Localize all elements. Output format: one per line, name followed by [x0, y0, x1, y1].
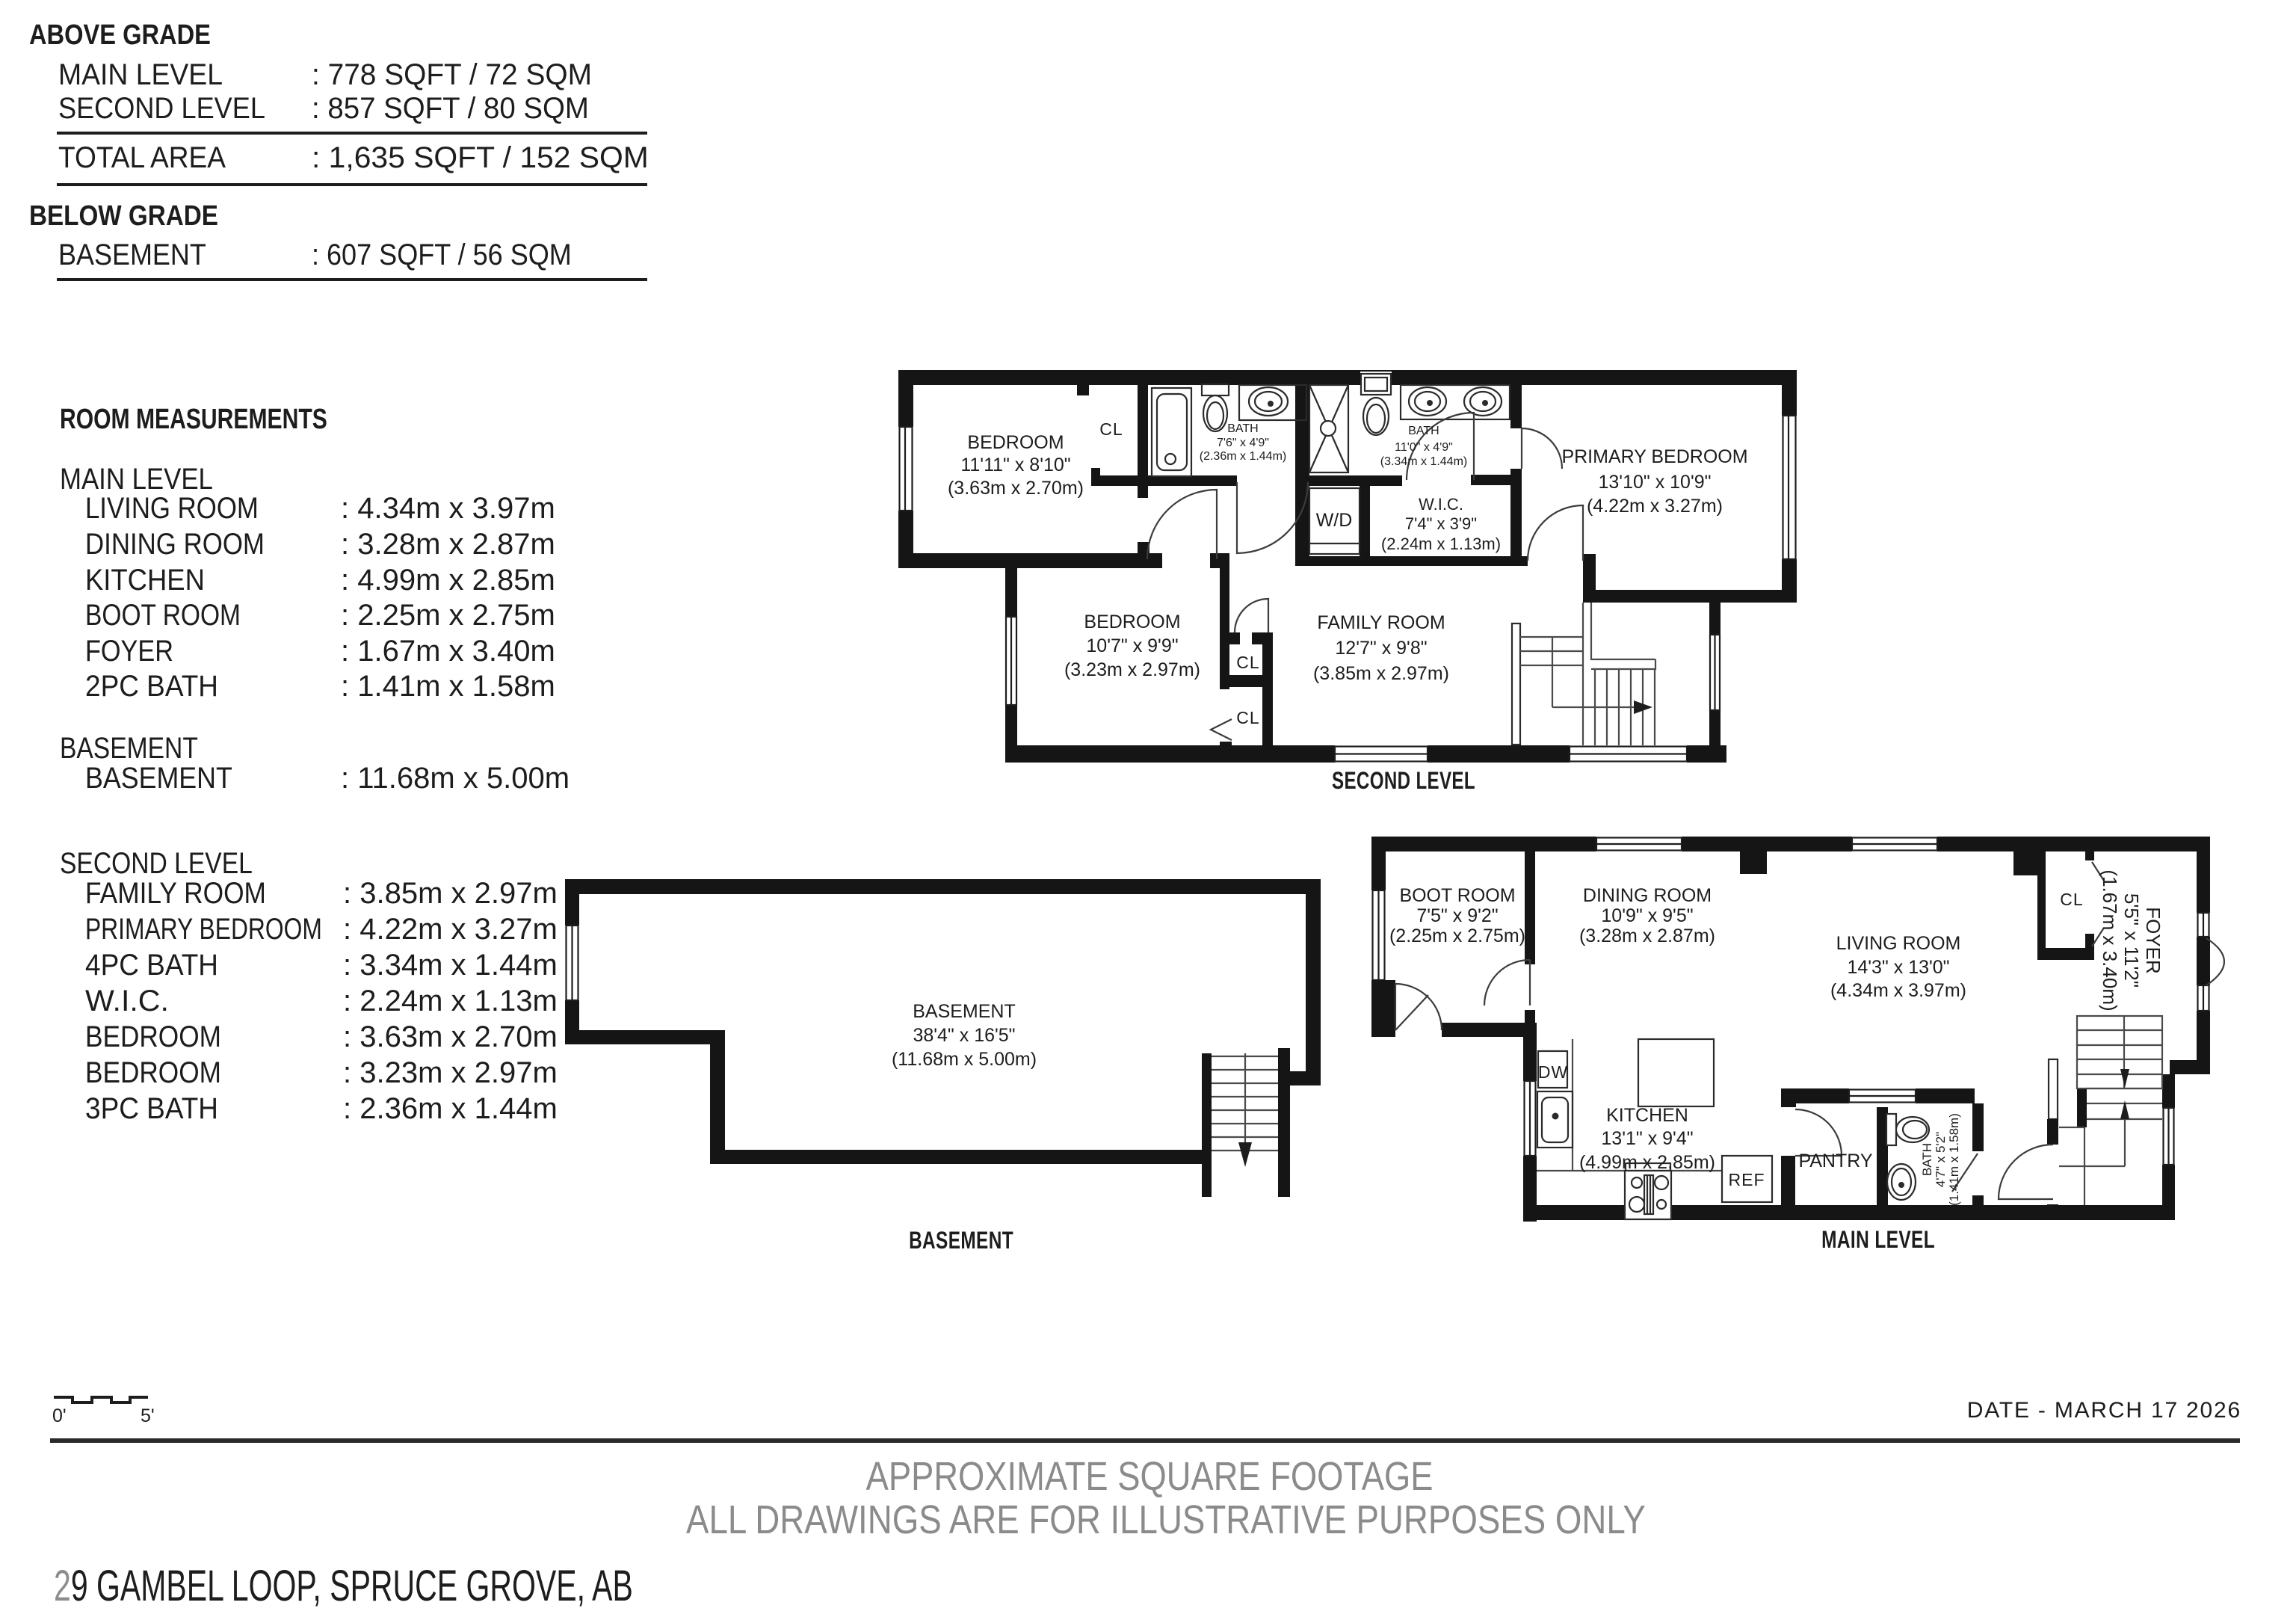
svg-text:MAIN LEVEL: MAIN LEVEL — [58, 58, 223, 91]
svg-text:: 1,635 SQFT / 152 SQM: : 1,635 SQFT / 152 SQM — [312, 140, 649, 174]
svg-text:14'3" x 13'0": 14'3" x 13'0" — [1847, 957, 1949, 978]
svg-text:BATH: BATH — [1920, 1143, 1934, 1176]
svg-text:BOOT ROOM: BOOT ROOM — [85, 598, 241, 631]
svg-text:: 3.85m x 2.97m: : 3.85m x 2.97m — [343, 877, 558, 910]
svg-text:BOOT ROOM: BOOT ROOM — [1399, 885, 1515, 906]
svg-text:12'7" x 9'8": 12'7" x 9'8" — [1335, 638, 1427, 659]
svg-text:PANTRY: PANTRY — [1798, 1151, 1872, 1171]
svg-text:38'4" x 16'5": 38'4" x 16'5" — [913, 1025, 1015, 1046]
svg-text:CL: CL — [2060, 890, 2083, 909]
svg-text:BATH: BATH — [1227, 422, 1258, 435]
svg-text:0': 0' — [52, 1405, 67, 1426]
svg-text:: 3.23m x 2.97m: : 3.23m x 2.97m — [343, 1056, 558, 1089]
svg-text:LIVING ROOM: LIVING ROOM — [1836, 933, 1961, 954]
svg-text:FOYER: FOYER — [2142, 907, 2164, 974]
svg-text:5'5" x 11'2": 5'5" x 11'2" — [2120, 893, 2143, 988]
svg-text:BATH: BATH — [1408, 425, 1439, 437]
svg-text:ROOM MEASUREMENTS: ROOM MEASUREMENTS — [60, 404, 327, 435]
svg-text:: 2.25m x 2.75m: : 2.25m x 2.75m — [341, 599, 555, 632]
svg-text:W/D: W/D — [1316, 510, 1353, 531]
svg-text:(3.85m x 2.97m): (3.85m x 2.97m) — [1313, 663, 1449, 684]
svg-text:BEDROOM: BEDROOM — [967, 432, 1064, 453]
svg-text:4PC BATH: 4PC BATH — [85, 949, 218, 982]
svg-text:: 778 SQFT / 72 SQM: : 778 SQFT / 72 SQM — [312, 58, 592, 91]
svg-text:(1.41m x 1.58m): (1.41m x 1.58m) — [1947, 1113, 1961, 1206]
svg-text:KITCHEN: KITCHEN — [1606, 1105, 1688, 1126]
svg-text:W.I.C.: W.I.C. — [85, 984, 169, 1017]
svg-text:BASEMENT: BASEMENT — [909, 1228, 1013, 1254]
svg-text:: 3.63m x 2.70m: : 3.63m x 2.70m — [343, 1020, 558, 1053]
svg-text:(11.68m x 5.00m): (11.68m x 5.00m) — [892, 1049, 1037, 1070]
svg-text:DINING ROOM: DINING ROOM — [85, 527, 265, 561]
svg-text:5': 5' — [141, 1405, 155, 1426]
svg-text:SECOND LEVEL: SECOND LEVEL — [1332, 768, 1475, 795]
svg-text:(3.34m x 1.44m): (3.34m x 1.44m) — [1380, 455, 1467, 468]
svg-text:DINING ROOM: DINING ROOM — [1583, 885, 1712, 906]
svg-text:10'9" x 9'5": 10'9" x 9'5" — [1601, 905, 1693, 926]
svg-text:: 1.67m x 3.40m: : 1.67m x 3.40m — [341, 635, 555, 668]
svg-text:(1.67m x 3.40m): (1.67m x 3.40m) — [2099, 869, 2121, 1011]
svg-text:(2.25m x 2.75m): (2.25m x 2.75m) — [1389, 926, 1525, 946]
svg-text:: 4.99m x 2.85m: : 4.99m x 2.85m — [341, 564, 555, 597]
svg-text:(4.34m x 3.97m): (4.34m x 3.97m) — [1830, 980, 1966, 1001]
svg-text:BASEMENT: BASEMENT — [58, 238, 206, 271]
svg-text:FAMILY ROOM: FAMILY ROOM — [85, 876, 266, 910]
svg-text:: 607 SQFT / 56 SQM: : 607 SQFT / 56 SQM — [312, 238, 572, 271]
svg-text:BEDROOM: BEDROOM — [85, 1056, 221, 1089]
svg-text:: 4.34m x 3.97m: : 4.34m x 3.97m — [341, 492, 555, 525]
svg-text:DW: DW — [1538, 1062, 1568, 1082]
svg-text:(2.24m x 1.13m): (2.24m x 1.13m) — [1381, 535, 1501, 553]
svg-text:: 2.36m x 1.44m: : 2.36m x 1.44m — [343, 1092, 558, 1125]
svg-text:REF: REF — [1729, 1170, 1765, 1189]
svg-text:(3.63m x 2.70m): (3.63m x 2.70m) — [948, 478, 1084, 499]
svg-text:10'7" x 9'9": 10'7" x 9'9" — [1086, 635, 1178, 656]
svg-text:DATE - MARCH 17 2026: DATE - MARCH 17 2026 — [1967, 1398, 2241, 1423]
svg-text:7'6" x 4'9": 7'6" x 4'9" — [1217, 437, 1269, 449]
svg-text:APPROXIMATE SQUARE FOOTAGE: APPROXIMATE SQUARE FOOTAGE — [866, 1453, 1434, 1499]
svg-text:PRIMARY BEDROOM: PRIMARY BEDROOM — [1561, 446, 1747, 467]
svg-text:ALL DRAWINGS ARE FOR ILLUSTRAT: ALL DRAWINGS ARE FOR ILLUSTRATIVE PURPOS… — [686, 1497, 1646, 1542]
svg-text:BASEMENT: BASEMENT — [85, 762, 232, 795]
svg-text:: 3.28m x 2.87m: : 3.28m x 2.87m — [341, 528, 555, 561]
svg-text:: 2.24m x 1.13m: : 2.24m x 1.13m — [343, 985, 558, 1017]
svg-text:29 GAMBEL LOOP, SPRUCE GROVE,: 29 GAMBEL LOOP, SPRUCE GROVE, AB — [54, 1562, 633, 1610]
svg-text:4'7" x 5'2": 4'7" x 5'2" — [1934, 1132, 1948, 1187]
svg-text:: 1.41m x 1.58m: : 1.41m x 1.58m — [341, 670, 555, 703]
svg-text:13'10" x 10'9": 13'10" x 10'9" — [1598, 472, 1711, 493]
svg-text:CL: CL — [1236, 653, 1259, 672]
svg-text:BASEMENT: BASEMENT — [913, 1001, 1016, 1022]
svg-text:BEDROOM: BEDROOM — [85, 1020, 221, 1053]
svg-text:TOTAL AREA: TOTAL AREA — [58, 141, 226, 175]
svg-text:SECOND LEVEL: SECOND LEVEL — [60, 846, 253, 879]
svg-text:11'11" x 8'10": 11'11" x 8'10" — [960, 455, 1070, 475]
svg-text:CL: CL — [1236, 708, 1259, 727]
svg-text:2PC BATH: 2PC BATH — [85, 670, 218, 703]
svg-text:: 11.68m x 5.00m: : 11.68m x 5.00m — [341, 762, 570, 795]
svg-text:(4.99m x 2.85m): (4.99m x 2.85m) — [1579, 1152, 1715, 1173]
svg-text:SECOND LEVEL: SECOND LEVEL — [58, 92, 265, 125]
svg-text:FAMILY ROOM: FAMILY ROOM — [1317, 612, 1445, 633]
svg-text:(3.28m x 2.87m): (3.28m x 2.87m) — [1579, 926, 1715, 946]
svg-text:11'0" x 4'9": 11'0" x 4'9" — [1395, 441, 1453, 454]
svg-text:(4.22m x 3.27m): (4.22m x 3.27m) — [1587, 496, 1723, 517]
svg-text:FOYER: FOYER — [85, 633, 173, 667]
svg-text:: 857 SQFT / 80 SQM: : 857 SQFT / 80 SQM — [312, 91, 589, 125]
svg-text:(2.36m x 1.44m): (2.36m x 1.44m) — [1200, 450, 1286, 463]
svg-text:MAIN LEVEL: MAIN LEVEL — [1821, 1227, 1935, 1254]
svg-text:BASEMENT: BASEMENT — [60, 731, 198, 764]
svg-text:(3.23m x 2.97m): (3.23m x 2.97m) — [1064, 659, 1200, 680]
svg-text:BELOW GRADE: BELOW GRADE — [29, 200, 218, 232]
svg-text:W.I.C.: W.I.C. — [1419, 495, 1463, 514]
svg-text:3PC BATH: 3PC BATH — [85, 1092, 218, 1126]
svg-text:13'1" x 9'4": 13'1" x 9'4" — [1601, 1128, 1693, 1149]
svg-text:PRIMARY BEDROOM: PRIMARY BEDROOM — [85, 911, 322, 945]
svg-text:LIVING ROOM: LIVING ROOM — [85, 491, 259, 525]
svg-text:KITCHEN: KITCHEN — [85, 563, 205, 597]
svg-text:: 4.22m x 3.27m: : 4.22m x 3.27m — [343, 913, 558, 946]
svg-text:CL: CL — [1099, 419, 1123, 439]
svg-text:: 3.34m x 1.44m: : 3.34m x 1.44m — [343, 949, 558, 982]
svg-text:7'4" x 3'9": 7'4" x 3'9" — [1405, 514, 1477, 533]
svg-text:BEDROOM: BEDROOM — [1084, 612, 1180, 632]
svg-text:7'5" x 9'2": 7'5" x 9'2" — [1416, 905, 1498, 926]
svg-text:ABOVE GRADE: ABOVE GRADE — [29, 19, 211, 51]
